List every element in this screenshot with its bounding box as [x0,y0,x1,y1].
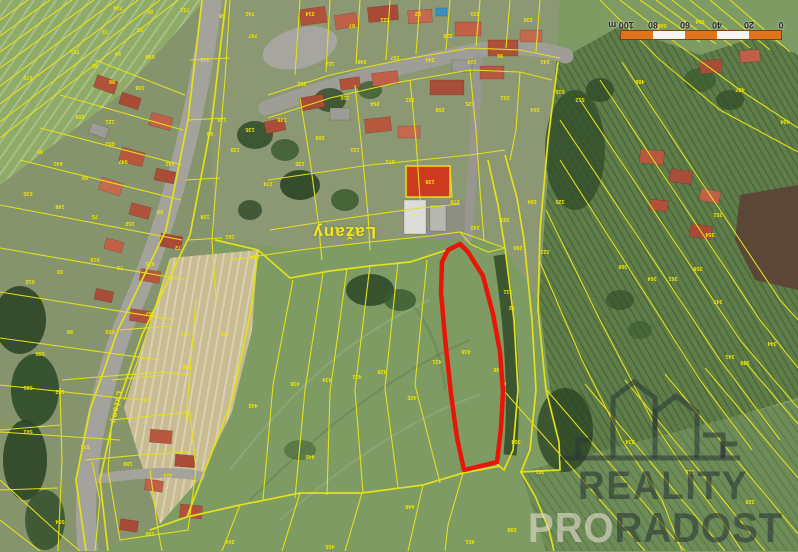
svg-text:72: 72 [175,244,181,250]
scalebar-bar [620,30,782,40]
svg-text:451: 451 [465,538,474,544]
svg-text:581: 581 [23,384,32,390]
svg-text:428: 428 [377,368,386,374]
svg-text:311: 311 [504,288,513,294]
svg-text:455: 455 [325,543,334,549]
svg-text:497: 497 [735,86,744,92]
svg-text:94: 94 [114,50,121,56]
svg-text:338: 338 [740,359,749,365]
svg-text:603: 603 [105,328,114,334]
svg-text:95: 95 [37,148,43,154]
svg-text:368: 368 [618,263,627,269]
svg-text:158: 158 [200,213,209,219]
svg-text:434: 434 [321,376,331,382]
svg-text:72: 72 [509,304,515,310]
svg-text:635: 635 [23,190,32,196]
svg-text:418: 418 [461,348,470,354]
svg-text:139: 139 [230,146,239,152]
svg-text:128: 128 [217,116,226,122]
svg-text:79: 79 [117,264,123,270]
svg-text:364: 364 [646,275,656,281]
svg-text:731: 731 [180,6,189,12]
svg-text:214: 214 [304,10,314,16]
svg-text:488: 488 [635,78,644,84]
svg-text:72: 72 [102,28,108,34]
svg-text:58: 58 [219,12,225,18]
svg-text:87: 87 [349,22,355,28]
svg-text:425: 425 [407,394,416,400]
svg-text:698: 698 [145,53,154,59]
svg-text:261: 261 [500,94,509,100]
svg-text:596: 596 [35,350,44,356]
svg-text:554: 554 [54,518,64,524]
svg-text:228: 228 [443,32,452,38]
svg-text:641: 641 [53,160,62,166]
svg-text:325: 325 [555,198,564,204]
watermark-proradost: PRORADOST [528,504,783,552]
map-screenshot: { "map": { "place_label": "Lažany", "roa… [0,0,798,551]
svg-text:68: 68 [157,208,163,214]
svg-text:724: 724 [112,4,122,10]
svg-text:271: 271 [385,158,394,164]
svg-text:588: 588 [182,363,191,369]
svg-text:288: 288 [513,244,522,250]
svg-text:334: 334 [624,438,634,444]
svg-text:494: 494 [779,118,789,124]
svg-text:86: 86 [147,8,153,14]
scalebar-label: 100 m [599,20,643,30]
svg-text:65: 65 [137,26,143,32]
scalebar-segment [749,31,781,39]
scalebar-segment [653,31,685,39]
svg-text:121: 121 [105,118,114,124]
svg-text:231: 231 [470,10,479,16]
scalebar-segment [685,31,717,39]
svg-text:167: 167 [145,310,154,316]
svg-text:138: 138 [425,178,434,184]
svg-text:112: 112 [201,56,210,62]
svg-text:284: 284 [526,198,536,204]
svg-text:184: 184 [139,396,149,402]
svg-text:121: 121 [405,96,414,102]
svg-text:125: 125 [465,100,474,106]
svg-text:96: 96 [497,52,503,58]
svg-text:248: 248 [357,58,366,64]
svg-text:571: 571 [80,443,89,449]
svg-text:135: 135 [245,126,254,132]
scalebar-segment [717,31,749,39]
svg-text:204: 204 [224,538,234,544]
svg-text:442: 442 [248,402,257,408]
svg-text:701: 701 [70,48,79,54]
svg-text:659: 659 [75,113,84,119]
svg-text:747: 747 [248,32,257,38]
svg-text:351: 351 [713,211,722,217]
svg-text:358: 358 [693,265,702,271]
watermark-reality: REALITY [578,464,748,509]
svg-text:244: 244 [424,56,434,62]
svg-text:108: 108 [135,84,144,90]
svg-text:264: 264 [529,106,539,112]
svg-text:175: 175 [220,330,229,336]
svg-text:448: 448 [405,503,414,509]
svg-text:561: 561 [23,428,32,434]
svg-text:278: 278 [450,198,459,204]
svg-text:103: 103 [467,58,476,64]
svg-text:612: 612 [25,278,34,284]
svg-text:235: 235 [523,16,532,22]
svg-text:148: 148 [55,203,64,209]
svg-text:679: 679 [23,74,32,80]
svg-text:512: 512 [575,96,584,102]
svg-text:241: 241 [540,58,549,64]
svg-text:445: 445 [305,453,314,459]
svg-text:258: 258 [435,106,444,112]
svg-text:164: 164 [249,253,259,259]
svg-text:112: 112 [326,60,335,66]
svg-text:88: 88 [82,174,88,180]
svg-text:141: 141 [470,224,479,230]
svg-text:301: 301 [535,468,544,474]
svg-text:96: 96 [109,78,115,84]
svg-text:619: 619 [90,256,99,262]
svg-text:341: 341 [725,353,734,359]
scalebar-segment [621,31,653,39]
svg-text:304: 304 [510,438,520,444]
svg-text:321: 321 [540,248,549,254]
svg-text:64: 64 [206,130,213,136]
svg-text:625: 625 [145,260,154,266]
svg-text:298: 298 [507,526,516,532]
svg-text:268: 268 [315,134,324,140]
svg-text:161: 161 [225,233,234,239]
svg-text:102: 102 [55,388,64,394]
svg-text:196: 196 [145,530,154,536]
svg-text:438: 438 [290,380,299,386]
svg-text:113: 113 [164,472,173,478]
svg-text:107: 107 [390,54,399,60]
svg-text:98: 98 [67,328,73,334]
svg-text:152: 152 [125,220,134,226]
svg-text:128: 128 [277,116,286,122]
svg-text:742: 742 [245,10,254,16]
svg-text:92: 92 [415,10,421,16]
svg-text:142: 142 [165,160,174,166]
svg-text:135: 135 [295,160,304,166]
svg-text:431: 431 [352,373,361,379]
svg-text:361: 361 [668,275,677,281]
map-scalebar: 020406080100 m [618,14,784,42]
svg-text:75: 75 [92,213,98,219]
svg-text:647: 647 [118,158,127,164]
svg-text:131: 131 [350,146,359,152]
svg-text:251: 251 [297,80,306,86]
svg-text:653: 653 [105,140,114,146]
place-label: Lažany [306,222,376,242]
svg-text:85: 85 [92,62,98,68]
svg-text:281: 281 [500,216,509,222]
svg-text:116: 116 [341,94,350,100]
svg-text:344: 344 [766,340,776,346]
svg-text:221: 221 [380,16,389,22]
svg-text:274: 274 [262,180,272,186]
highlight-parcel-group [441,244,503,470]
svg-text:421: 421 [432,358,441,364]
svg-text:347: 347 [713,298,722,304]
svg-text:171: 171 [180,330,189,336]
watermark-pro: PRO [528,504,614,551]
svg-text:354: 354 [704,231,714,237]
svg-text:189: 189 [123,460,132,466]
svg-text:254: 254 [369,100,379,106]
svg-text:515: 515 [555,88,564,94]
svg-text:93: 93 [57,268,63,274]
watermark-radost: RADOST [614,504,783,551]
